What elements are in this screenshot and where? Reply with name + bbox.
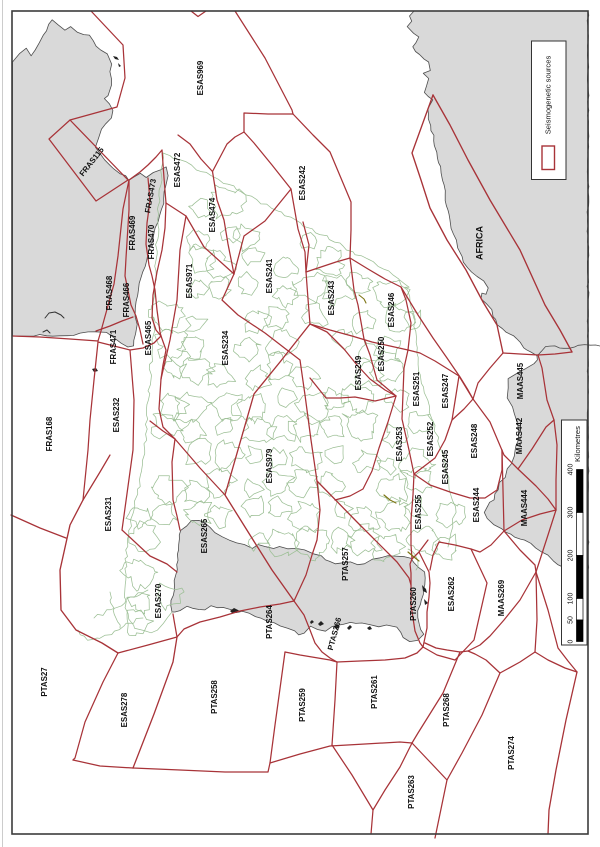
svg-text:ESAS248: ESAS248: [470, 423, 479, 458]
svg-text:ESAS232: ESAS232: [112, 397, 121, 432]
svg-text:400: 400: [567, 464, 574, 476]
svg-text:AFRICA: AFRICA: [474, 226, 484, 260]
svg-text:FRAS470: FRAS470: [147, 224, 156, 259]
svg-text:Kilometres: Kilometres: [573, 426, 582, 462]
svg-text:ESAS250: ESAS250: [377, 336, 386, 371]
svg-text:ESAS244: ESAS244: [472, 487, 481, 522]
svg-text:FRAS466: FRAS466: [122, 282, 131, 317]
svg-text:ESAS245: ESAS245: [441, 449, 450, 484]
svg-text:PTAS264: PTAS264: [265, 605, 274, 639]
svg-text:ESAS270: ESAS270: [154, 583, 163, 618]
svg-text:ESAS262: ESAS262: [447, 576, 456, 611]
svg-text:ESAS278: ESAS278: [120, 692, 129, 727]
svg-text:ESAS971: ESAS971: [185, 263, 194, 298]
svg-text:ESAS969: ESAS969: [196, 60, 205, 95]
svg-text:ESAS472: ESAS472: [173, 152, 182, 187]
svg-text:ESAS465: ESAS465: [144, 320, 153, 355]
svg-text:50: 50: [567, 616, 574, 624]
svg-text:PTAS257: PTAS257: [341, 547, 350, 581]
svg-text:ESAS979: ESAS979: [265, 448, 274, 483]
svg-text:PTAS261: PTAS261: [370, 675, 379, 709]
svg-text:ESAS243: ESAS243: [327, 280, 336, 315]
svg-text:ESAS252: ESAS252: [426, 421, 435, 456]
svg-text:PTAS268: PTAS268: [442, 693, 451, 727]
svg-text:300: 300: [567, 507, 574, 519]
svg-text:200: 200: [567, 550, 574, 562]
svg-text:PTAS263: PTAS263: [407, 775, 416, 809]
svg-text:ESAS255: ESAS255: [414, 494, 423, 529]
svg-text:PTAS258: PTAS258: [210, 680, 219, 714]
svg-text:FRAS471: FRAS471: [109, 329, 118, 364]
svg-text:PTAS260: PTAS260: [409, 587, 418, 621]
svg-text:FRAS469: FRAS469: [128, 215, 137, 250]
svg-text:MAAS445: MAAS445: [516, 362, 525, 399]
svg-text:ESAS474: ESAS474: [208, 197, 217, 232]
svg-text:ESAS251: ESAS251: [412, 371, 421, 406]
svg-text:100: 100: [567, 593, 574, 605]
svg-text:ESAS249: ESAS249: [354, 355, 363, 390]
svg-text:ESAS253: ESAS253: [395, 426, 404, 461]
svg-text:MAAS444: MAAS444: [520, 489, 529, 526]
svg-text:ESAS241: ESAS241: [265, 258, 274, 293]
svg-text:FRAS468: FRAS468: [105, 275, 114, 310]
svg-text:ESAS247: ESAS247: [441, 373, 450, 408]
svg-text:ESAS246: ESAS246: [387, 292, 396, 327]
svg-text:PTAS27: PTAS27: [40, 667, 49, 697]
svg-text:ESAS265: ESAS265: [200, 518, 209, 553]
svg-text:ESAS234: ESAS234: [221, 330, 230, 365]
svg-text:ESAS242: ESAS242: [298, 165, 307, 200]
svg-text:FRAS168: FRAS168: [45, 416, 54, 451]
svg-text:0: 0: [567, 639, 574, 643]
svg-text:PTAS274: PTAS274: [507, 736, 516, 770]
svg-text:MAAS269: MAAS269: [497, 579, 506, 616]
svg-text:PTAS259: PTAS259: [298, 688, 307, 722]
svg-text:Seismogenetic sources: Seismogenetic sources: [544, 56, 553, 135]
svg-text:ESAS231: ESAS231: [104, 496, 113, 531]
svg-text:MAAS442: MAAS442: [515, 417, 524, 454]
